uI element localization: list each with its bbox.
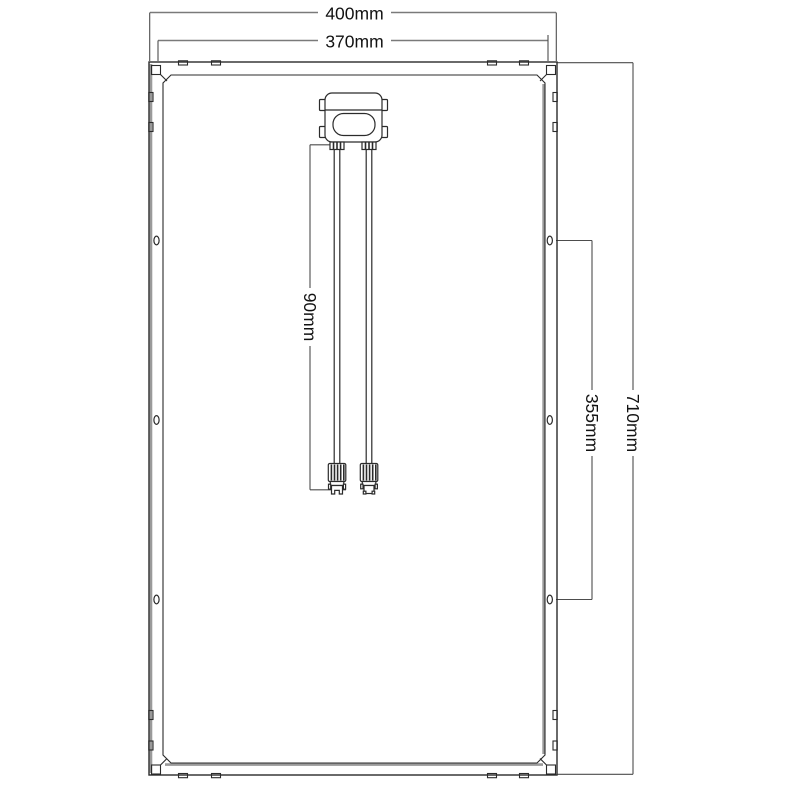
corner-key-top-left [152, 66, 161, 75]
mounting-hole [547, 236, 552, 245]
cable-gland-right [362, 142, 376, 150]
connector-foot [372, 491, 375, 494]
corner-weld-line [540, 75, 547, 82]
mounting-hole [154, 236, 159, 245]
connector-tab [343, 484, 345, 489]
dimension-label-outer-width: 400mm [325, 4, 383, 24]
dimension-label-cable-length: 90mm [300, 293, 320, 342]
mounting-hole [154, 416, 159, 425]
connector-socket [331, 486, 342, 495]
connector-collar [362, 482, 376, 486]
mc4-connector-left [328, 464, 346, 495]
panel-rear-view-drawing: 400mm 370mm 710mm 355mm 90mm [0, 0, 790, 790]
corner-key-top-right [547, 66, 556, 75]
mounting-hole [547, 416, 552, 425]
panel-inner-edge [163, 75, 545, 763]
panel-outer-edge [149, 62, 557, 775]
corner-key-bottom-right [547, 765, 556, 774]
junction-box [320, 93, 388, 150]
connector-tab [329, 484, 331, 489]
dimension-label-overall-height: 710mm [623, 394, 643, 452]
cable-right [366, 150, 372, 464]
cable-left [334, 150, 340, 464]
dimension-label-hole-spacing: 355mm [582, 394, 602, 452]
corner-weld-line [161, 75, 168, 82]
connector-pin-tab [361, 484, 363, 489]
connector-foot [363, 491, 366, 494]
corner-key-bottom-left [152, 765, 161, 774]
mounting-hole [154, 595, 159, 604]
technical-drawing-canvas: 400mm 370mm 710mm 355mm 90mm [0, 0, 790, 790]
cable-gland-left [330, 142, 344, 150]
mc4-connector-right [360, 464, 378, 495]
dimension-370mm: 370mm [158, 32, 548, 62]
dimension-355mm: 355mm [556, 241, 602, 600]
dimension-label-inner-width: 370mm [325, 32, 383, 52]
connector-pin-tab [375, 484, 377, 489]
panel-frame [149, 61, 557, 778]
dimension-90mm: 90mm [300, 145, 346, 490]
mounting-hole [547, 595, 552, 604]
